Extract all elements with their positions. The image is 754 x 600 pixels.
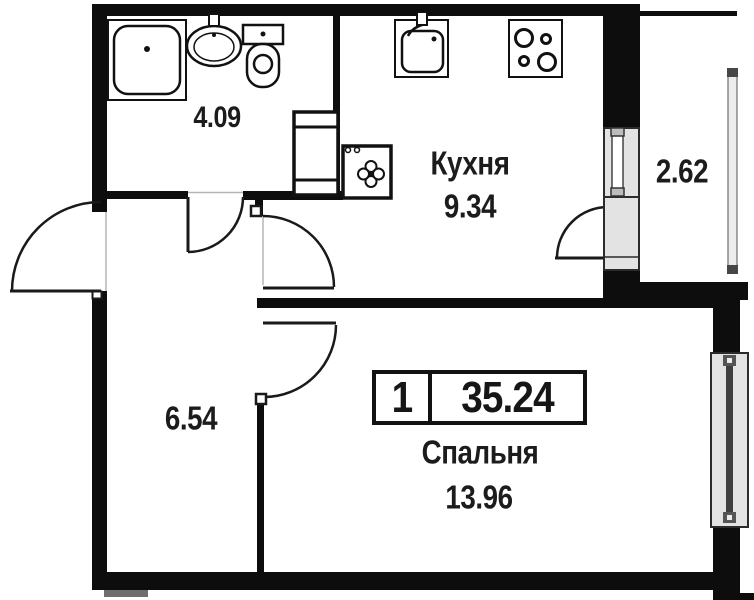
top-wall: [92, 4, 640, 16]
bedroom-area-label: 13.96: [445, 481, 512, 514]
kitchen-door-hinge: [251, 206, 261, 216]
right-wall-lower-column: [713, 527, 740, 600]
balcony-area-label: 2.62: [656, 155, 708, 188]
balcony-door-arc: [557, 207, 608, 258]
balcony-glazing: [728, 70, 737, 273]
room-count-value: 1: [379, 374, 425, 421]
right-wall-upper-column: [713, 300, 740, 353]
shower-tray-inner: [114, 26, 180, 94]
bathroom-area-label: 4.09: [193, 103, 240, 133]
balcony-partition-upper: [603, 16, 640, 128]
bathroom-bottom-wall-left: [107, 191, 188, 199]
total-area-value: 35.24: [441, 374, 574, 421]
apartment-summary-badge: 1 35.24: [372, 370, 587, 425]
bathroom-door-arc: [188, 197, 243, 252]
bottom-right-step: [740, 593, 754, 600]
washer-valve-1: [346, 148, 351, 153]
left-wall-upper: [92, 4, 107, 212]
balcony-partition-lower: [603, 270, 640, 282]
kitchen-name-label: Кухня: [431, 147, 510, 180]
kitchen-faucet-base: [417, 12, 427, 25]
washer-rosette-w: [358, 169, 369, 180]
badge-divider: [428, 374, 432, 421]
kitchen-sink-dot: [432, 37, 437, 42]
washbasin-faucet: [209, 14, 219, 26]
vent-shaft-icon: [294, 112, 338, 195]
bottom-wall: [92, 572, 717, 590]
bedroom-door-arc: [264, 325, 336, 397]
washer-rosette-center: [368, 171, 374, 177]
balcony-glazing-cap-top: [727, 68, 738, 77]
balcony-bottom-wall: [603, 282, 748, 300]
entrance-door-arc: [12, 202, 101, 291]
washbasin-inner: [194, 33, 234, 61]
shower-drain: [144, 46, 150, 52]
balcony-window-cap-top: [611, 128, 624, 136]
bottom-left-ledge: [104, 590, 148, 597]
bedroom-window-cap-bottom-inner: [727, 515, 732, 520]
bedroom-window-bar: [726, 362, 733, 519]
toilet-tank-dot: [261, 32, 266, 37]
floorplan-canvas: 4.09 Кухня 9.34 2.62 6.54 Спальня 13.96 …: [0, 0, 754, 600]
floorplan-drawing: [0, 0, 754, 600]
kitchen-sink-inner: [402, 31, 443, 72]
walls-group: [92, 4, 754, 600]
entrance-door-hinge: [93, 292, 102, 299]
door-plane-lines: [106, 193, 263, 292]
bedroom-window-cap-top-inner: [727, 358, 732, 363]
toilet-bowl: [247, 44, 279, 87]
kitchen-door-arc: [263, 216, 334, 287]
balcony-window-glass: [612, 134, 623, 190]
bedroom-name-label: Спальня: [422, 436, 539, 469]
washer-rosette-e: [373, 169, 384, 180]
balcony-glazing-cap-bottom: [727, 265, 738, 274]
hallway-area-label: 6.54: [165, 402, 217, 435]
hall-bedroom-partition: [257, 404, 264, 572]
balcony-top-edge: [640, 11, 737, 16]
left-wall-lower: [92, 291, 107, 590]
balcony-window-cap-bottom: [611, 188, 624, 196]
bedroom-top-wall: [257, 298, 713, 308]
kitchen-area-label: 9.34: [444, 190, 496, 223]
washer-valve-2: [355, 148, 360, 153]
washbasin-dot: [212, 33, 216, 37]
bedroom-door-hinge: [256, 394, 266, 404]
